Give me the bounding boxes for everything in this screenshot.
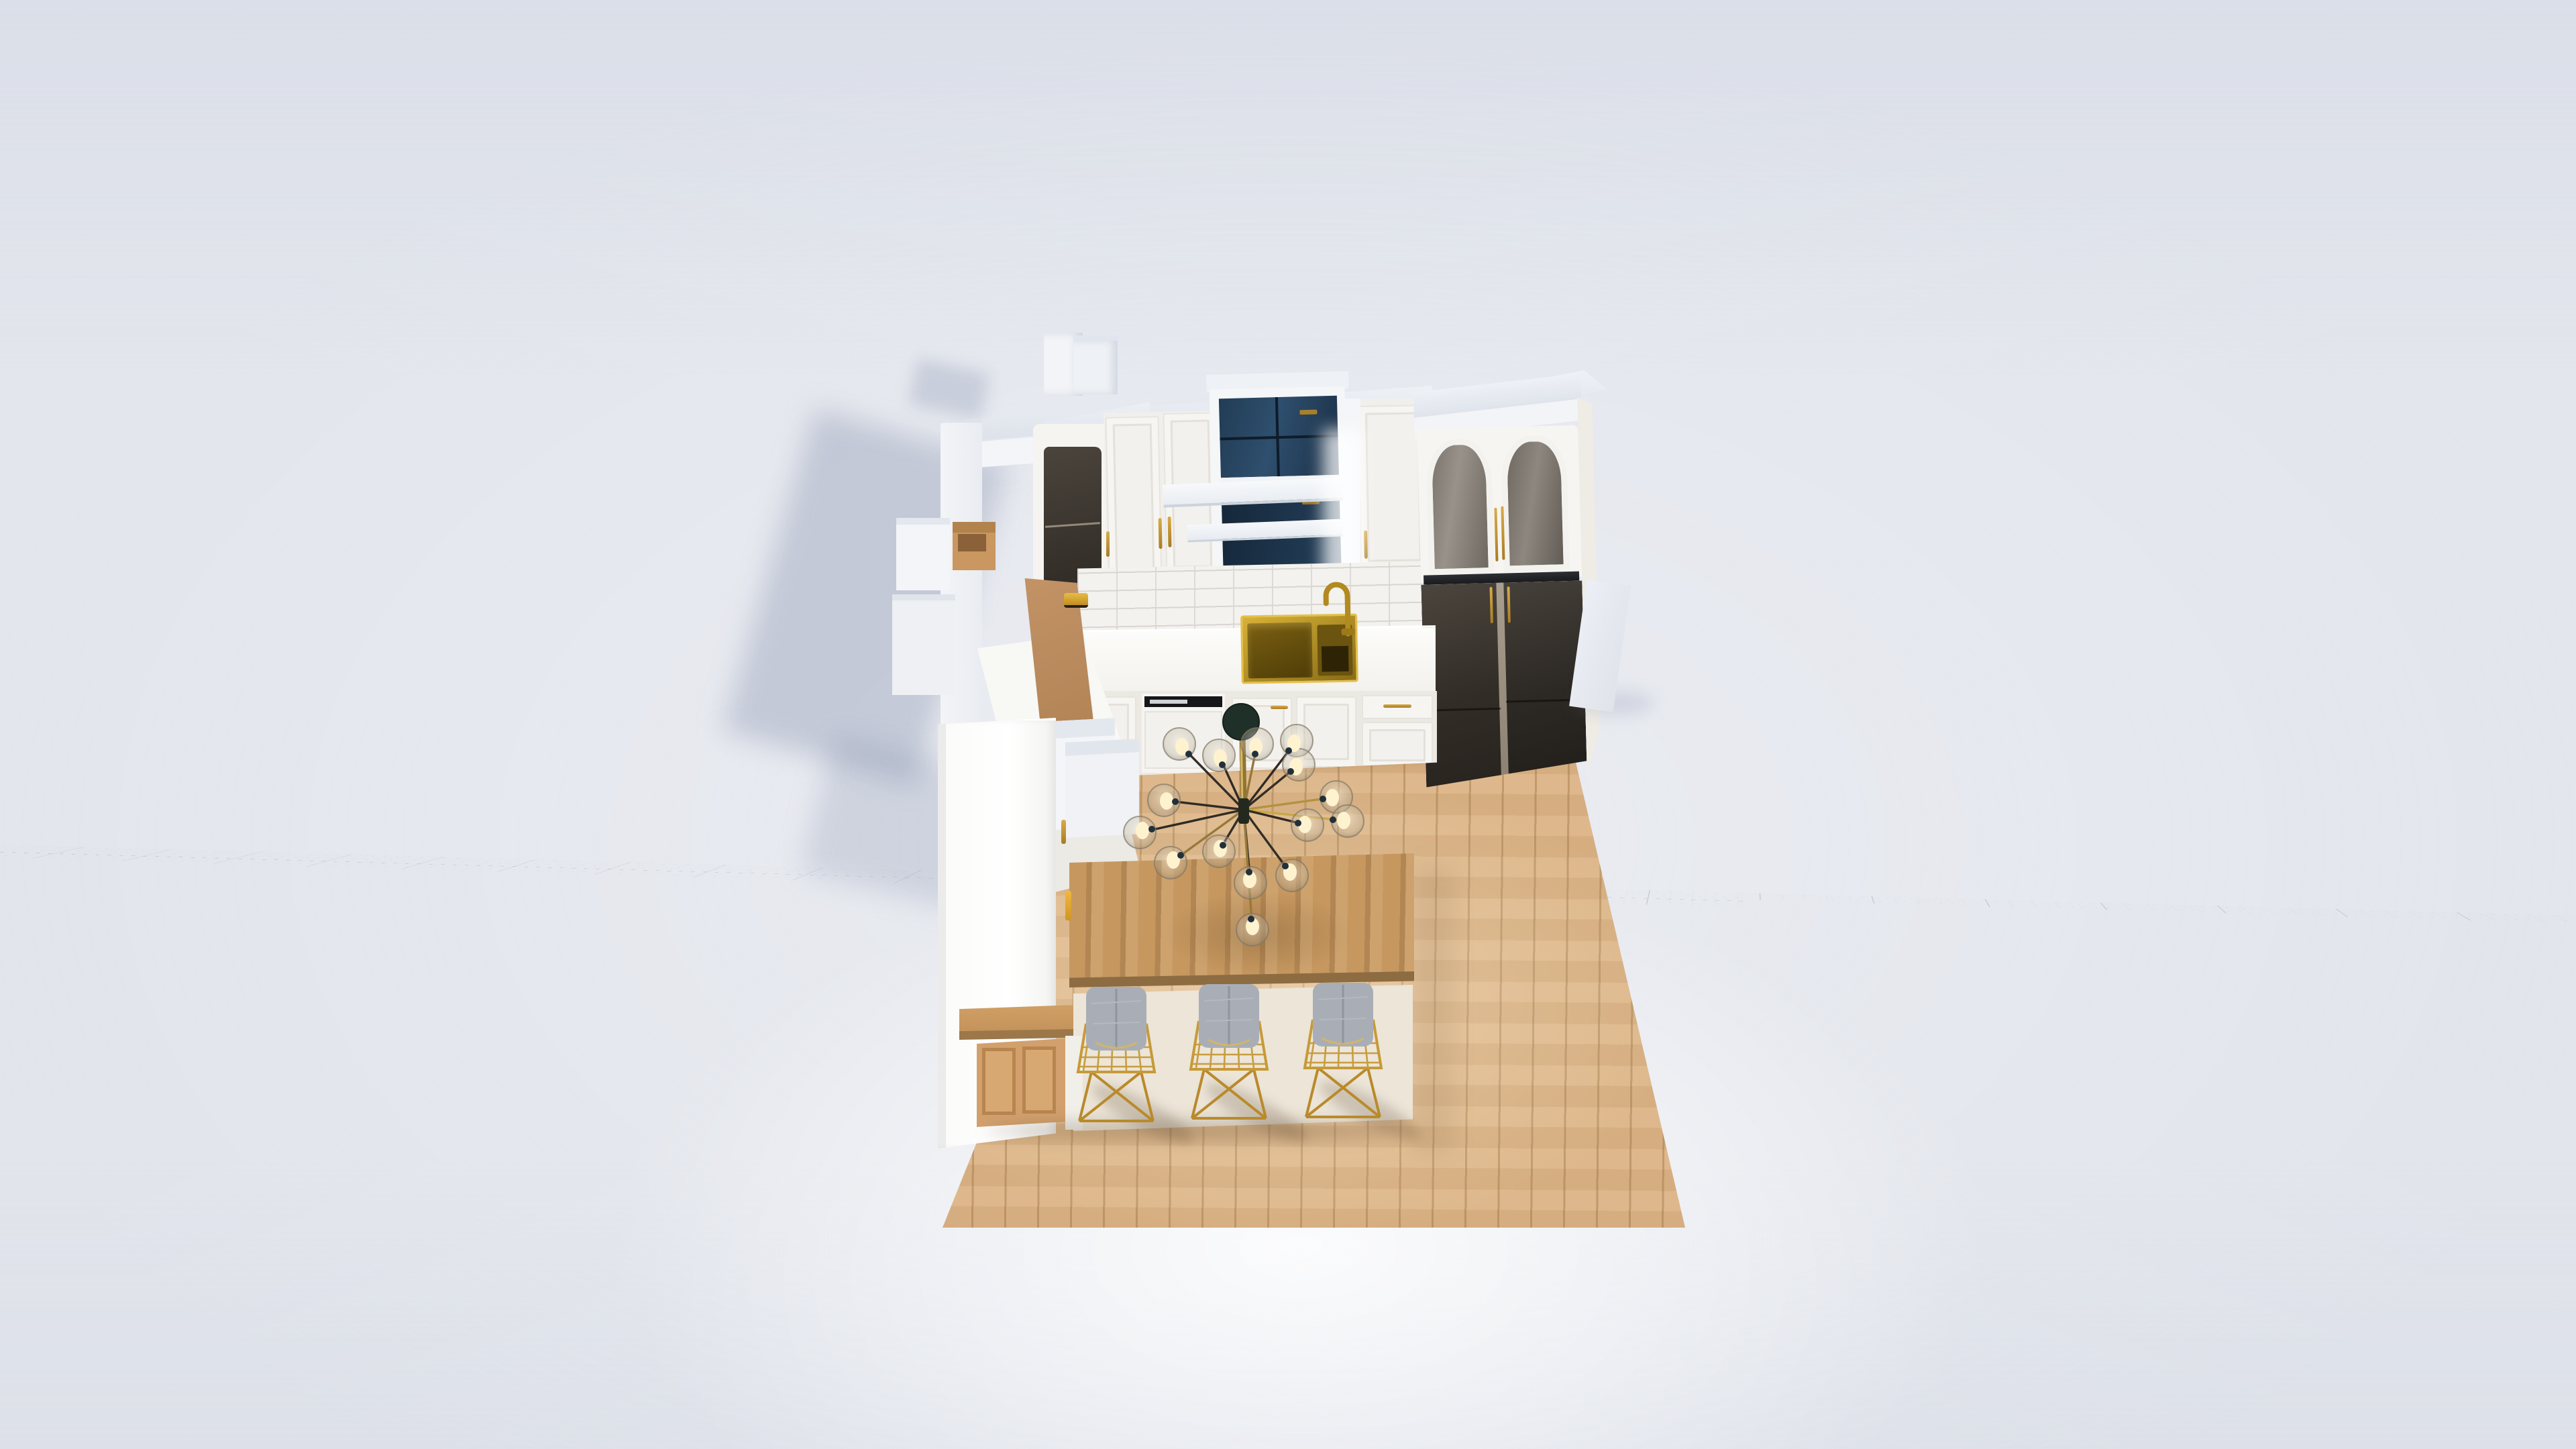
chandelier[interactable]: [1060, 691, 1409, 973]
crate-opening: [958, 534, 986, 551]
chimney-box-small[interactable]: [1073, 335, 1118, 394]
sink-faucet: [1307, 569, 1368, 637]
refrigerator[interactable]: [1421, 581, 1587, 788]
floorplanner-viewport[interactable]: [0, 0, 2576, 1449]
island-base-panels[interactable]: [977, 1038, 1065, 1127]
gold-item[interactable]: [1064, 593, 1088, 608]
cabinet-pull: [1159, 518, 1163, 549]
tall-unit[interactable]: [1413, 366, 1602, 780]
island-pull: [1061, 820, 1066, 844]
island-floor-shadow: [986, 1122, 1402, 1139]
left-out-box-1[interactable]: [896, 518, 950, 590]
kitchen-scene: [0, 0, 2576, 1449]
island-pull: [1065, 891, 1071, 920]
window-glass-upper: [1219, 396, 1339, 478]
hutch-glass-door: [1426, 438, 1495, 575]
cabinet-door: [1105, 416, 1162, 580]
hutch-glass-door: [1501, 435, 1570, 572]
bar-stool[interactable]: [1293, 979, 1393, 1120]
tan-panel: [982, 1048, 1016, 1115]
bar-stool[interactable]: [1066, 983, 1167, 1124]
island-side-shade: [1413, 865, 1453, 1154]
glass-shelf-line: [1045, 522, 1100, 528]
tan-panel: [1022, 1046, 1056, 1114]
left-out-box-2[interactable]: [892, 594, 955, 695]
cabinet-pull: [1106, 531, 1110, 557]
sink-drain-box: [1322, 646, 1349, 672]
sink-basin-left: [1247, 623, 1312, 679]
cabinet-pull: [1364, 531, 1368, 559]
cabinet-pull: [1168, 517, 1172, 547]
sash-handle: [1299, 410, 1317, 415]
bar-stool[interactable]: [1179, 981, 1279, 1122]
tan-crate[interactable]: [953, 522, 996, 570]
kitchen-sink[interactable]: [1240, 610, 1364, 689]
